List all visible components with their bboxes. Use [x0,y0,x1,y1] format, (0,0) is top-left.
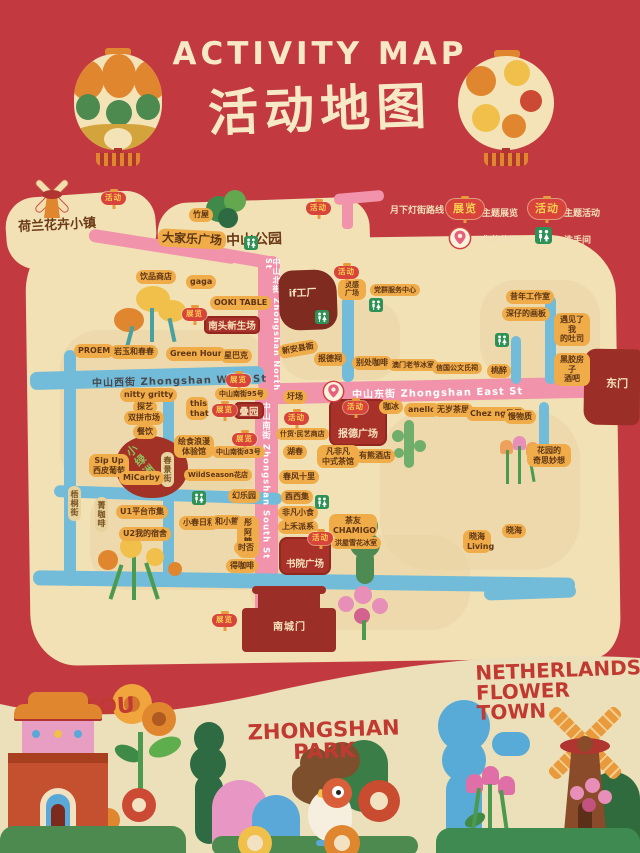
map-pin-icon [322,380,345,403]
tree-icon [206,190,254,234]
map-place-label: 幻乐园 [228,489,260,503]
activity-lantern-badge: 活动 [308,532,333,545]
footer-band: NANTOU CITY ZHONGSHAN PARK NETHERLANDS F… [0,640,640,853]
map-place-label: 湖春 [283,445,307,459]
street-blue [64,350,76,586]
activity-lantern-badge: 活动 [101,192,126,205]
map-place-label: 饮品商店 [136,270,176,284]
xinsheng-market-box: 南头新生场 [204,316,260,334]
exhibit-lantern-badge: 展览 [446,199,484,219]
street-label-wutong: 梧桐街 [68,486,81,521]
map-place-label: U2我的宿舍 [119,527,171,541]
pink-road-icon [334,186,386,230]
map-place-label: MiCarby [119,471,164,485]
restroom-icon [315,495,329,509]
map-place-label: 党群服务中心 [370,284,420,296]
map-place-label: OOKI TABLE [210,296,271,310]
exhibit-lantern-badge: 展览 [212,614,237,627]
map-place-label: 澳门老爷冰室 [388,359,438,371]
map-place-label: 岩玉和春春 [110,345,158,359]
map-place-label: 咖冰 [379,400,403,414]
map-place-label: 得咖啡 [226,559,258,573]
restroom-icon [369,298,383,312]
map-place-label: 菁咖啡 [95,497,108,532]
map-place-label: WildSeason花店 [184,469,252,481]
exhibit-lantern-badge: 展览 [182,308,207,321]
activity-lantern-badge: 活动 [284,412,309,425]
map-place-label: 晓海 Living [463,530,491,553]
map-place-label: 竹屋 [189,208,213,222]
festival-lantern-icon [72,48,164,166]
restroom-icon [535,227,552,244]
activity-lantern-badge: 活动 [306,202,331,215]
if-factory-label: if工厂 [288,284,316,300]
map-pin-icon [448,226,472,250]
flower-icon [84,536,194,604]
legend: 月下灯街路线 展览 主题展览 活动 主题活动 您的位置 洗手间 [330,182,630,254]
map-place-label: 时否 [234,541,258,555]
street-label-south: 中山南街 Zhongshan South St [261,402,270,610]
map-place-label: 星巴克 [220,349,252,363]
windmill-icon [528,690,640,840]
map-place-label: 灵感广场 [338,279,366,300]
map-place-label: 昔年工作室 [506,290,554,304]
map-place-label: 茶友 CHAMIGO [329,514,377,537]
restroom-icon [495,333,509,347]
map-place-label: 黑胶房子 酒吧 [554,353,590,386]
activity-lantern-badge: 活动 [528,199,566,219]
street-blue [342,296,354,382]
flower-lantern-icon [458,50,556,168]
map-place-label: 什货·民艺商店 [276,428,329,440]
east-gate: 东门 [583,349,640,426]
flower-icon [334,586,394,642]
map-place-label: 凡非凡 中式茶馆 [317,445,359,468]
map-place-label: 有熊酒店 [355,449,395,463]
tulip-icon [462,766,522,836]
restroom-icon [244,236,258,250]
south-gate-label: 南城门 [273,618,306,633]
map-place-label: 别处咖啡 [352,356,392,370]
area-netherlands-flower-town: 荷兰花卉小镇 [18,212,97,235]
map-place-label: 中山南街83号 [212,446,265,458]
map-place-label: PROEM [74,344,114,358]
map-place-label: 花园的 奇思妙想 [527,444,571,467]
map-place-label: 深仔的画板 [502,307,550,321]
map-place-label: U1平台市集 [116,505,168,519]
map-place-label: 慢物质 [504,410,536,424]
map-place-label: 非凡小食 [278,506,318,520]
map-place-label: 洪屋雪花冰室 [331,537,381,549]
map-place-label: 中山南街95号 [215,388,268,400]
activity-map-poster: ACTIVITY MAP 活动地图 月下灯街路线 展览 主题展览 活动 主题活动… [0,0,640,853]
exhibit-lantern-badge: 展览 [232,433,257,446]
zhongshan-park-title: ZHONGSHAN PARK [247,717,400,764]
map-place-label: 遇见了我 的吐司 [554,313,590,346]
cactus-icon [392,420,426,470]
map-place-label: 晓海 [502,524,526,538]
map-place-label: Green Hour [166,347,226,361]
map-place-label: 圩场 [283,390,307,404]
map-place-label: gaga [186,275,216,289]
activity-lantern-badge: 活动 [334,266,359,279]
map-place-label: 春风十里 [279,470,319,484]
east-gate-label: 东门 [606,375,628,391]
legend-exhibit-label: 主题展览 [482,206,518,219]
street-label-chunjing: 春景街 [161,452,174,487]
legend-route-label: 月下灯街路线 [390,203,444,216]
south-gate: 南城门 [242,586,336,652]
city-gate-icon [6,692,112,842]
map-place-label: 酉西集 [281,490,313,504]
tree-icon [114,286,190,348]
exhibit-lantern-badge: 展览 [212,404,237,417]
map-place-label: 信国公文氏祠 [432,362,482,374]
map-place-label: 双拼市场 [124,411,164,425]
restroom-icon [315,310,329,324]
map-place-label: 绘食浪漫 体验馆 [174,435,214,458]
legend-activity-label: 主题活动 [564,206,600,219]
legend-restroom-label: 洗手间 [564,233,591,246]
if-factory-building: if工厂 [278,269,338,331]
map-place-label: this that [186,397,208,420]
map-place-label: 报德祠 [314,352,346,366]
legend-location-label: 您的位置 [482,233,518,246]
activity-lantern-badge: 活动 [343,401,368,414]
exhibit-lantern-badge: 展览 [226,374,251,387]
restroom-icon [192,491,206,505]
street-blue [511,336,521,384]
map-place-label: 桃醉 [487,364,511,378]
dieyuan-box: 叠园 [234,402,264,419]
map-place-label: 餐饮 [133,425,157,439]
